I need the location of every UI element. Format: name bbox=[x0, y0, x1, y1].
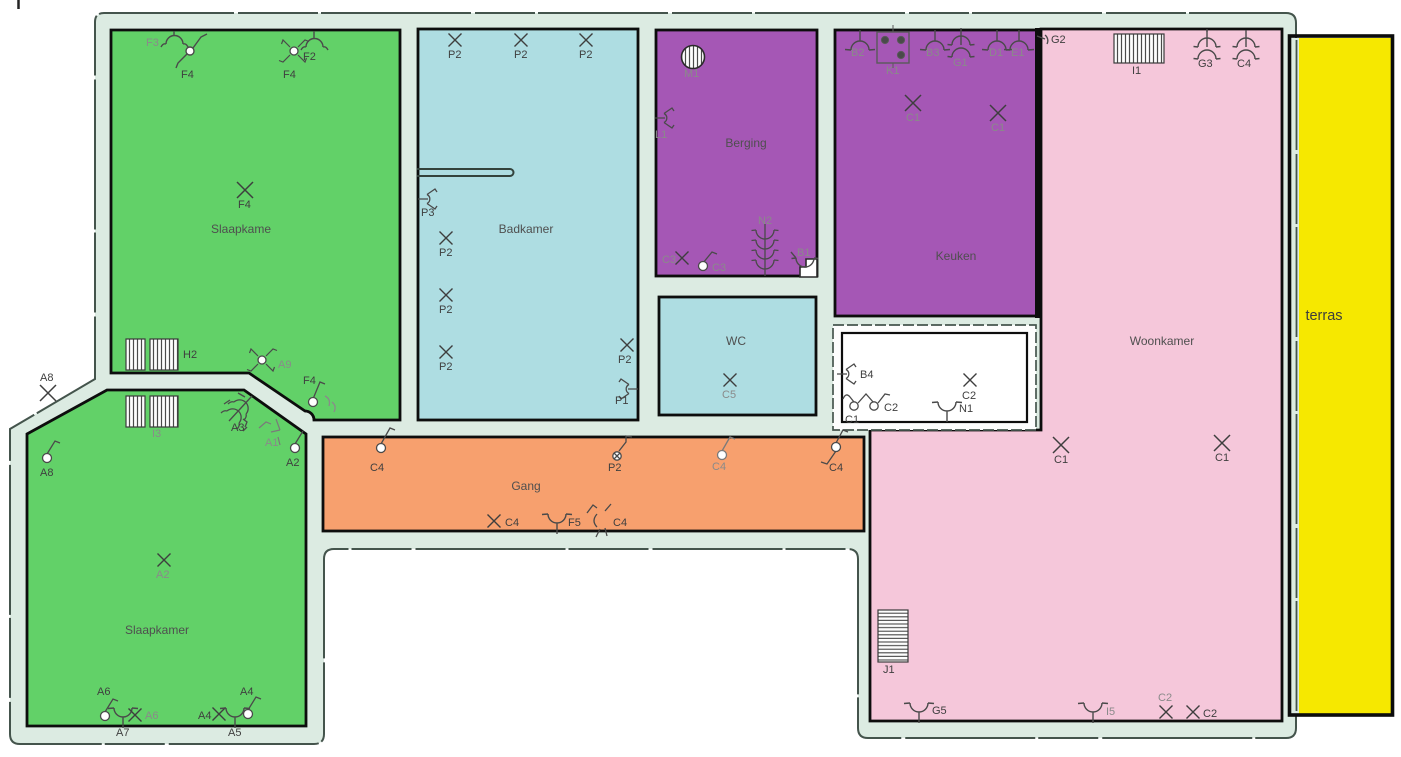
svg-text:A6: A6 bbox=[145, 710, 158, 722]
svg-text:C4: C4 bbox=[1237, 58, 1251, 70]
svg-text:C1: C1 bbox=[845, 414, 859, 426]
svg-text:C3: C3 bbox=[662, 254, 676, 266]
svg-text:F4: F4 bbox=[283, 69, 296, 81]
svg-text:I1: I1 bbox=[1132, 65, 1141, 77]
svg-text:P2: P2 bbox=[439, 304, 452, 316]
svg-text:I5: I5 bbox=[1106, 706, 1115, 718]
svg-text:G1: G1 bbox=[953, 57, 968, 69]
svg-text:F3: F3 bbox=[146, 37, 159, 49]
svg-text:A5: A5 bbox=[228, 727, 241, 739]
svg-text:C1: C1 bbox=[906, 112, 920, 124]
svg-text:A9: A9 bbox=[278, 359, 291, 371]
svg-text:P2: P2 bbox=[608, 462, 621, 474]
svg-text:E1: E1 bbox=[1011, 47, 1024, 59]
svg-text:B4: B4 bbox=[860, 369, 873, 381]
svg-text:C4: C4 bbox=[829, 462, 843, 474]
svg-text:D1: D1 bbox=[989, 47, 1003, 59]
svg-text:C1: C1 bbox=[1215, 452, 1229, 464]
svg-text:C4: C4 bbox=[370, 462, 384, 474]
svg-text:Woonkamer: Woonkamer bbox=[1130, 334, 1194, 348]
svg-text:A3: A3 bbox=[231, 422, 244, 434]
svg-text:P2: P2 bbox=[514, 49, 527, 61]
svg-text:Slaapkame: Slaapkame bbox=[211, 222, 271, 236]
svg-text:WC: WC bbox=[726, 334, 746, 348]
svg-text:P3: P3 bbox=[421, 207, 434, 219]
svg-text:A2: A2 bbox=[156, 569, 169, 581]
svg-text:C4: C4 bbox=[712, 461, 726, 473]
svg-text:H2: H2 bbox=[183, 349, 197, 361]
svg-text:A6: A6 bbox=[97, 686, 110, 698]
svg-text:F4: F4 bbox=[181, 69, 194, 81]
svg-text:C4: C4 bbox=[613, 517, 627, 529]
svg-text:C5: C5 bbox=[722, 389, 736, 401]
svg-text:L1: L1 bbox=[655, 129, 667, 141]
svg-text:A8: A8 bbox=[40, 467, 53, 479]
svg-text:C4: C4 bbox=[505, 517, 519, 529]
svg-text:N1: N1 bbox=[959, 403, 973, 415]
svg-text:C2: C2 bbox=[884, 402, 898, 414]
svg-text:P2: P2 bbox=[439, 247, 452, 259]
svg-text:A7: A7 bbox=[116, 727, 129, 739]
svg-text:A4: A4 bbox=[240, 686, 253, 698]
svg-text:N2: N2 bbox=[758, 215, 772, 227]
svg-text:B1: B1 bbox=[797, 247, 810, 259]
svg-text:A4: A4 bbox=[198, 710, 211, 722]
svg-text:K1: K1 bbox=[886, 65, 899, 77]
svg-text:P2: P2 bbox=[439, 361, 452, 373]
svg-text:F2: F2 bbox=[303, 51, 316, 63]
svg-text:C1: C1 bbox=[991, 122, 1005, 134]
svg-text:B3: B3 bbox=[926, 47, 939, 59]
svg-text:P2: P2 bbox=[618, 354, 631, 366]
svg-text:A2: A2 bbox=[286, 457, 299, 469]
svg-text:J1: J1 bbox=[883, 664, 895, 676]
svg-text:P2: P2 bbox=[448, 49, 461, 61]
svg-text:Gang: Gang bbox=[511, 479, 540, 493]
svg-text:F5: F5 bbox=[568, 517, 581, 529]
svg-text:A1: A1 bbox=[265, 437, 278, 449]
svg-text:Keuken: Keuken bbox=[936, 249, 977, 263]
svg-text:C2: C2 bbox=[1158, 692, 1172, 704]
svg-text:A8: A8 bbox=[40, 372, 53, 384]
svg-text:F4: F4 bbox=[238, 199, 251, 211]
svg-text:G5: G5 bbox=[932, 705, 947, 717]
svg-text:C3: C3 bbox=[712, 262, 726, 274]
svg-text:P1: P1 bbox=[615, 395, 628, 407]
svg-text:I3: I3 bbox=[152, 428, 161, 440]
svg-text:M1: M1 bbox=[684, 68, 699, 80]
svg-text:C1: C1 bbox=[1054, 454, 1068, 466]
svg-text:Slaapkamer: Slaapkamer bbox=[125, 623, 189, 637]
svg-text:Berging: Berging bbox=[725, 136, 766, 150]
svg-text:B2: B2 bbox=[851, 47, 864, 59]
svg-text:Badkamer: Badkamer bbox=[499, 222, 554, 236]
svg-text:terras: terras bbox=[1305, 308, 1342, 324]
svg-text:C2: C2 bbox=[1203, 708, 1217, 720]
svg-text:C2: C2 bbox=[962, 390, 976, 402]
svg-text:P2: P2 bbox=[579, 49, 592, 61]
svg-text:G2: G2 bbox=[1051, 34, 1066, 46]
svg-text:G3: G3 bbox=[1198, 58, 1213, 70]
svg-text:F4: F4 bbox=[303, 375, 316, 387]
